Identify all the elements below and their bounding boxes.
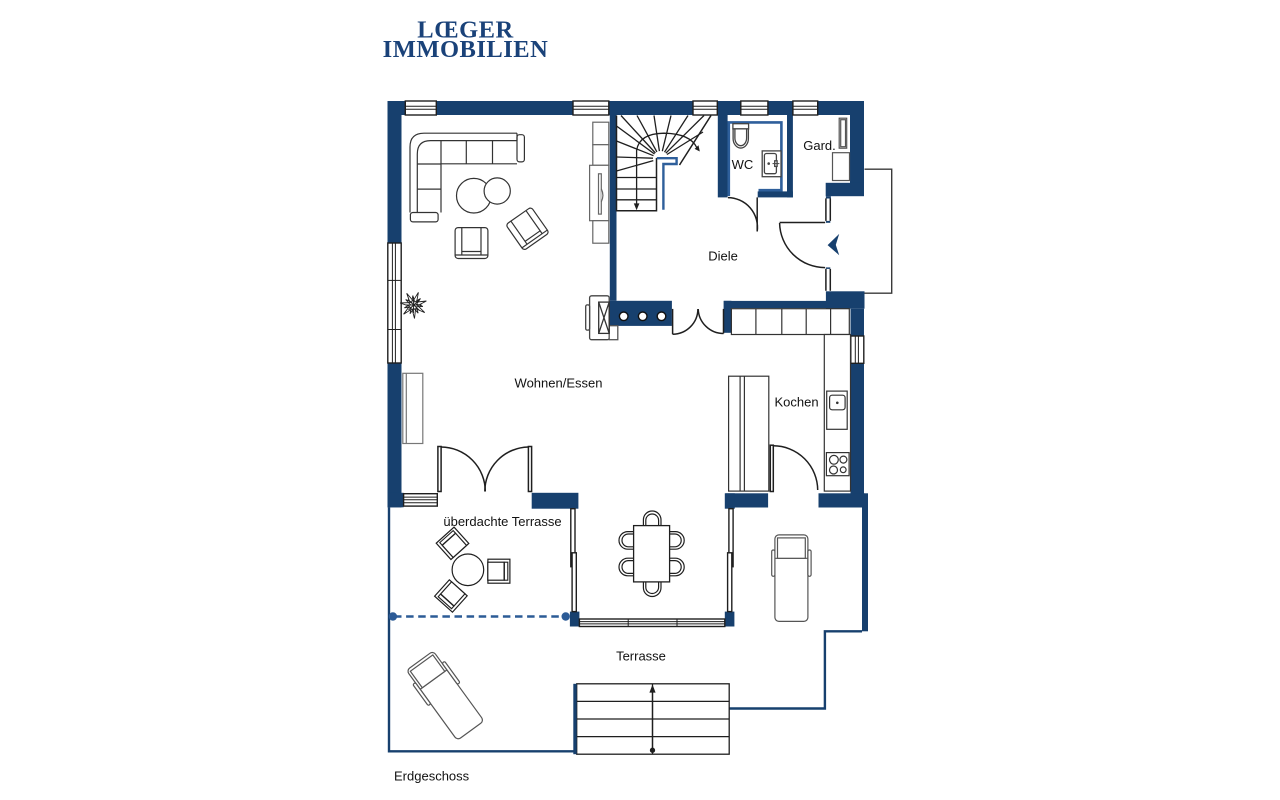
svg-text:Diele: Diele <box>708 248 738 263</box>
svg-text:Kochen: Kochen <box>774 395 818 410</box>
svg-text:Terrasse: Terrasse <box>616 649 666 664</box>
svg-text:IMMOBILIEN: IMMOBILIEN <box>383 36 549 63</box>
svg-text:Gard.: Gard. <box>803 138 836 153</box>
svg-text:überdachte Terrasse: überdachte Terrasse <box>443 514 561 529</box>
svg-text:Erdgeschoss: Erdgeschoss <box>394 769 470 784</box>
svg-text:Wohnen/Essen: Wohnen/Essen <box>515 375 603 390</box>
svg-text:WC: WC <box>732 157 754 172</box>
